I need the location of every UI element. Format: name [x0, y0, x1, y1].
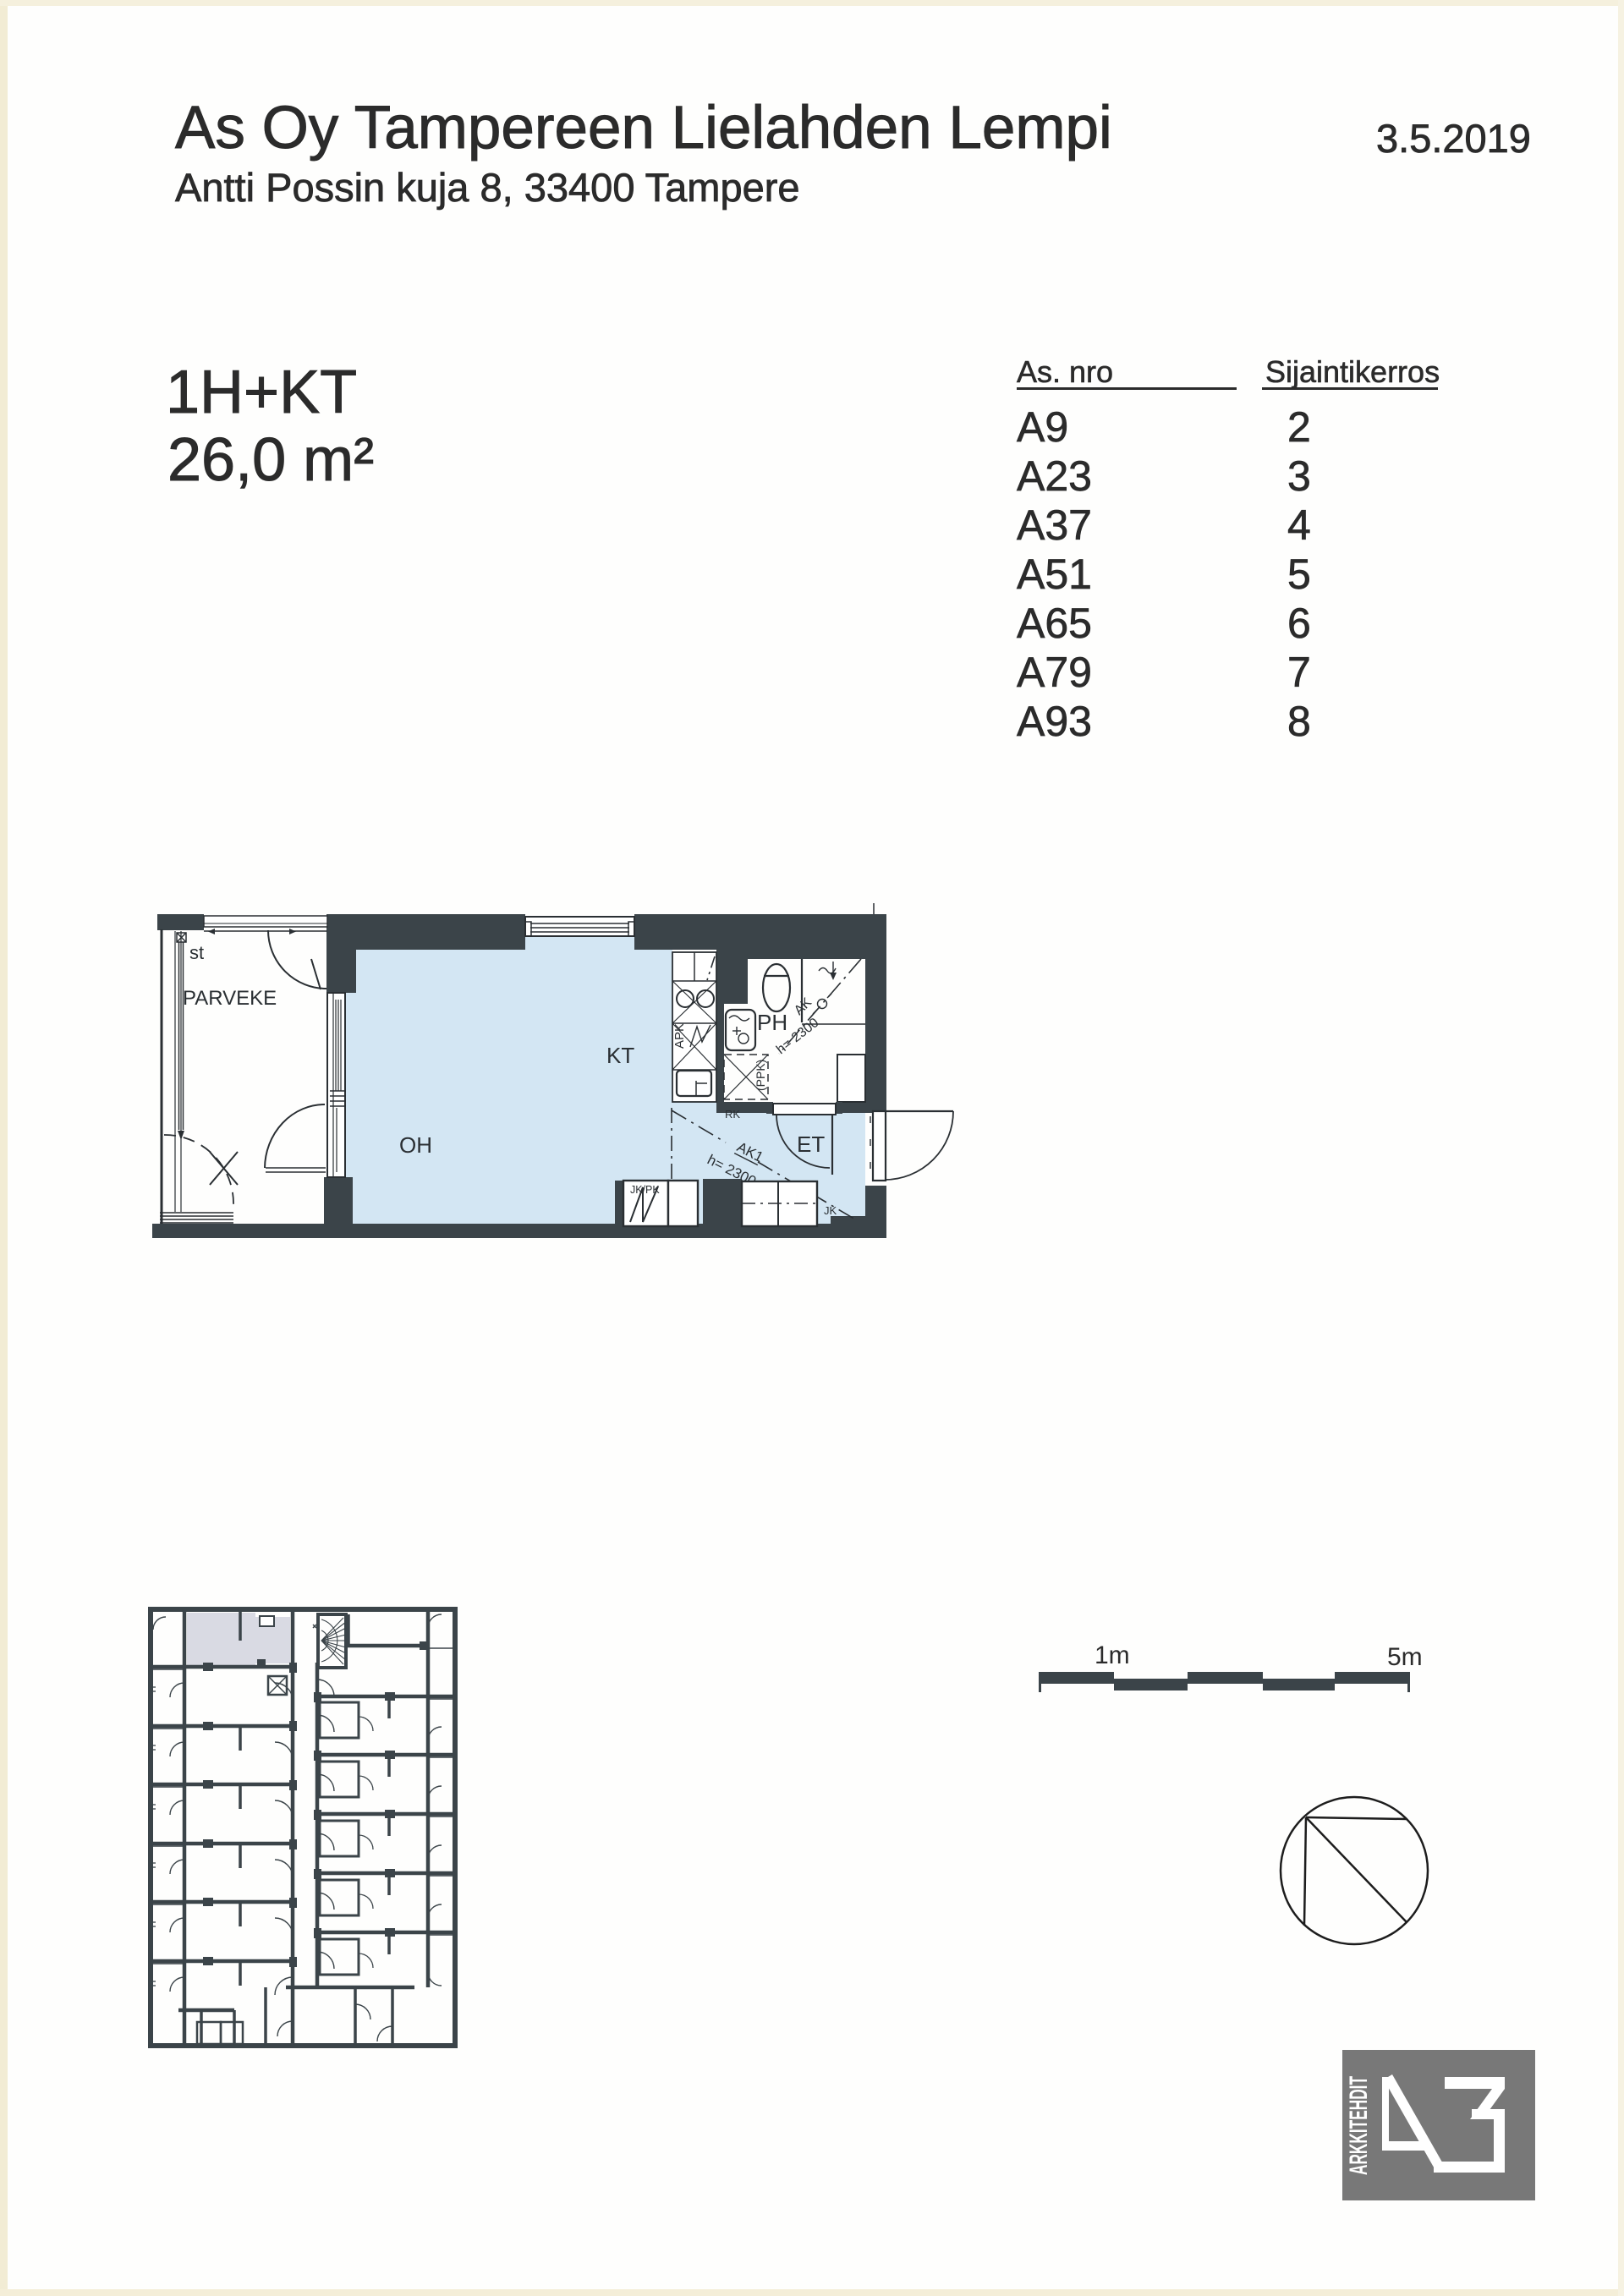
svg-text:1H+KT: 1H+KT: [166, 359, 357, 426]
svg-text:OH: OH: [399, 1132, 432, 1158]
svg-text:5m: 5m: [1387, 1643, 1423, 1671]
svg-text:A93: A93: [1017, 698, 1092, 745]
svg-text:JK/PK: JK/PK: [630, 1184, 660, 1196]
svg-text:8: 8: [1287, 698, 1311, 745]
svg-text:JK: JK: [824, 1204, 837, 1217]
svg-text:A9: A9: [1017, 403, 1068, 451]
svg-text:As. nro: As. nro: [1017, 354, 1113, 389]
svg-text:A37: A37: [1017, 501, 1092, 549]
svg-text:1m: 1m: [1095, 1641, 1130, 1669]
svg-text:RK: RK: [725, 1108, 740, 1121]
svg-text:A23: A23: [1017, 452, 1092, 500]
svg-text:PH: PH: [757, 1010, 787, 1035]
svg-text:A65: A65: [1017, 600, 1092, 647]
svg-text:5: 5: [1287, 551, 1311, 598]
svg-text:ET: ET: [797, 1132, 825, 1157]
svg-text:26,0 m²: 26,0 m²: [167, 426, 374, 494]
svg-text:Antti Possin kuja 8, 33400 Tam: Antti Possin kuja 8, 33400 Tampere: [175, 165, 800, 210]
svg-text:(PPK): (PPK): [754, 1060, 767, 1091]
svg-text:7: 7: [1287, 649, 1311, 696]
svg-text:PARVEKE: PARVEKE: [183, 987, 277, 1010]
svg-text:KT: KT: [606, 1043, 634, 1068]
svg-text:A51: A51: [1017, 551, 1092, 598]
svg-text:As Oy Tampereen Lielahden Lemp: As Oy Tampereen Lielahden Lempi: [175, 95, 1112, 162]
svg-text:6: 6: [1287, 600, 1311, 647]
svg-text:ARKKITEHDIT: ARKKITEHDIT: [1345, 2076, 1373, 2175]
svg-text:st: st: [189, 942, 204, 963]
svg-text:Sijaintikerros: Sijaintikerros: [1265, 354, 1440, 389]
svg-text:3.5.2019: 3.5.2019: [1376, 116, 1531, 161]
svg-text:3: 3: [1287, 452, 1311, 500]
svg-text:2: 2: [1287, 403, 1311, 451]
svg-text:A79: A79: [1017, 649, 1092, 696]
svg-text:4: 4: [1287, 501, 1311, 549]
svg-text:APK: APK: [672, 1023, 687, 1049]
